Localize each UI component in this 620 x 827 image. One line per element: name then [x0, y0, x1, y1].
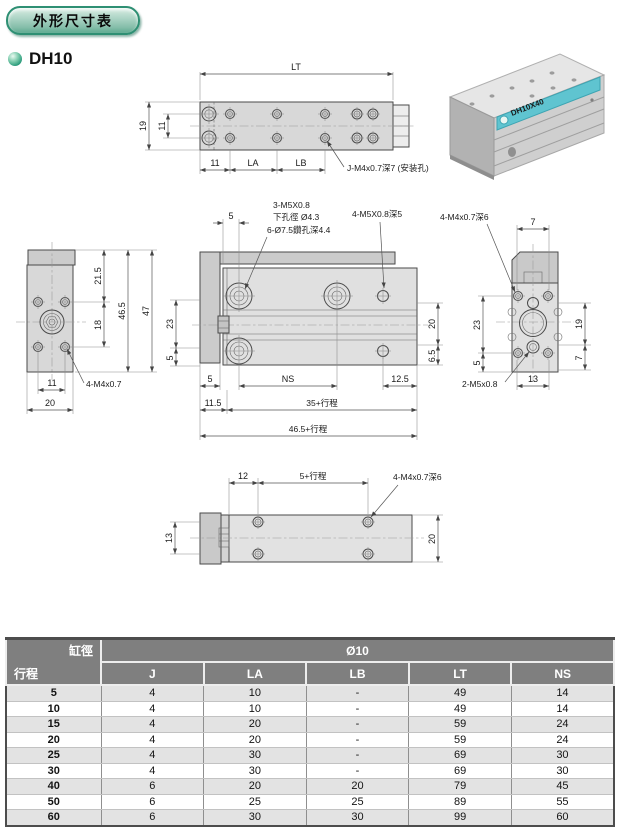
callout-4-m4: 4-M4x0.7 — [86, 379, 122, 389]
cell: 69 — [409, 748, 512, 764]
cell: 30 — [306, 810, 409, 826]
dim-5-top: 5 — [228, 211, 233, 221]
dim-19: 19 — [574, 319, 584, 329]
bottom-view: 12 5+行程 4-M4x0.7深6 13 20 — [164, 471, 443, 564]
cell: 30 — [511, 748, 614, 764]
dim-47: 47 — [141, 306, 151, 316]
dim-18: 18 — [93, 320, 103, 330]
cell: 25 — [204, 794, 307, 810]
dim-11: 11 — [210, 158, 219, 168]
table-corner-cell: 缸徑 行程 — [6, 639, 101, 686]
stroke-cell: 20 — [6, 732, 101, 748]
dim-7-right: 7 — [574, 355, 584, 360]
cell: 20 — [204, 732, 307, 748]
cell: 69 — [409, 763, 512, 779]
callout-4-m5: 4-M5X0.8深5 — [352, 209, 402, 219]
table-row: 5 4 10 - 49 14 — [6, 685, 614, 701]
cell: 89 — [409, 794, 512, 810]
stroke-cell: 60 — [6, 810, 101, 826]
dim-20-right: 20 — [427, 319, 437, 329]
cell: 30 — [204, 810, 307, 826]
dim-7-top: 7 — [530, 217, 535, 227]
dim-11-side: 11 — [157, 121, 167, 130]
cell: - — [306, 748, 409, 764]
cell: - — [306, 763, 409, 779]
dim-lb: LB — [295, 158, 306, 168]
callout-3-m5-line2: 下孔徑 Ø4.3 — [273, 212, 320, 222]
col-header-ns: NS — [511, 662, 614, 685]
cell: 55 — [511, 794, 614, 810]
cell: 14 — [511, 701, 614, 717]
cell: 10 — [204, 701, 307, 717]
stroke-cell: 15 — [6, 717, 101, 733]
dim-11-5: 11.5 — [205, 398, 222, 408]
dim-46-5-stroke: 46.5+行程 — [289, 424, 328, 434]
product-photo: DH10X40 — [450, 54, 604, 180]
callout-3-m5-line3: 6-Ø7.5鑽孔深4.4 — [267, 225, 331, 235]
cell: 49 — [409, 685, 512, 701]
callout-3-m5-line1: 3-M5X0.8 — [273, 200, 310, 210]
cell: 20 — [204, 779, 307, 795]
stroke-cell: 5 — [6, 685, 101, 701]
cell: 4 — [101, 717, 204, 733]
stroke-cell: 25 — [6, 748, 101, 764]
corner-bore-label: 缸徑 — [69, 642, 93, 659]
stroke-cell: 30 — [6, 763, 101, 779]
stroke-cell: 50 — [6, 794, 101, 810]
cell: 20 — [306, 779, 409, 795]
dim-20-bottom-view: 20 — [427, 534, 437, 544]
cell: - — [306, 701, 409, 717]
cell: 30 — [204, 763, 307, 779]
cell: 4 — [101, 763, 204, 779]
dim-19: 19 — [138, 121, 148, 131]
callout-4-m4-deep6: 4-M4x0.7深6 — [440, 212, 489, 222]
dim-5-left: 5 — [165, 355, 175, 360]
cell: 59 — [409, 717, 512, 733]
dim-5-stroke: 5+行程 — [300, 471, 327, 481]
dim-20-bottom: 20 — [45, 398, 55, 408]
table-row: 50 6 25 25 89 55 — [6, 794, 614, 810]
dim-5-right-view: 5 — [472, 360, 482, 365]
cell: 24 — [511, 732, 614, 748]
cell: 6 — [101, 779, 204, 795]
cell: 6 — [101, 794, 204, 810]
stroke-cell: 10 — [6, 701, 101, 717]
cell: 14 — [511, 685, 614, 701]
corner-stroke-label: 行程 — [14, 665, 38, 682]
dim-6-5: 6.5 — [427, 350, 437, 363]
table-row: 20 4 20 - 59 24 — [6, 732, 614, 748]
table-row: 40 6 20 20 79 45 — [6, 779, 614, 795]
cell: 20 — [204, 717, 307, 733]
dim-5-bottom: 5 — [207, 374, 212, 384]
cell: - — [306, 732, 409, 748]
dimension-table: 缸徑 行程 Ø10 J LA LB LT NS 5 4 10 - 49 14 — [5, 637, 615, 827]
cell: 25 — [306, 794, 409, 810]
table-row: 10 4 10 - 49 14 — [6, 701, 614, 717]
cell: 99 — [409, 810, 512, 826]
cell: 6 — [101, 810, 204, 826]
cell: 4 — [101, 748, 204, 764]
cell: 30 — [511, 763, 614, 779]
col-header-la: LA — [204, 662, 307, 685]
callout-4-m4-deep6-bottom: 4-M4x0.7深6 — [393, 472, 442, 482]
dim-12: 12 — [238, 471, 248, 481]
dim-13: 13 — [528, 374, 538, 384]
cell: 30 — [204, 748, 307, 764]
dim-23-left: 23 — [165, 319, 175, 329]
callout-mounting-holes: J-M4x0.7深7 (安装孔) — [347, 163, 429, 173]
table-row: 30 4 30 - 69 30 — [6, 763, 614, 779]
table-row: 25 4 30 - 69 30 — [6, 748, 614, 764]
front-view: 5 3-M5X0.8 下孔徑 Ø4.3 6-Ø7.5鑽孔深4.4 4-M5X0.… — [165, 200, 443, 440]
top-view: LT 19 11 11 LA LB J-M4x0.7深7 (安装孔) — [138, 62, 429, 174]
dim-11-bottom: 11 — [47, 378, 56, 388]
cell: - — [306, 685, 409, 701]
cell: 24 — [511, 717, 614, 733]
col-header-lt: LT — [409, 662, 512, 685]
bore-header: Ø10 — [101, 639, 614, 663]
stroke-cell: 40 — [6, 779, 101, 795]
col-header-j: J — [101, 662, 204, 685]
table-row: 60 6 30 30 99 60 — [6, 810, 614, 826]
cell: 49 — [409, 701, 512, 717]
col-header-lb: LB — [306, 662, 409, 685]
dim-13-bottom-view: 13 — [164, 533, 174, 543]
table-row: 15 4 20 - 59 24 — [6, 717, 614, 733]
cell: 60 — [511, 810, 614, 826]
left-end-view: 21.5 18 46.5 47 11 20 4-M4x0.7 — [16, 242, 157, 414]
dim-35-stroke: 35+行程 — [306, 398, 338, 408]
cell: 4 — [101, 732, 204, 748]
dim-la: LA — [247, 158, 258, 168]
cell: 45 — [511, 779, 614, 795]
callout-2-m5: 2-M5x0.8 — [462, 379, 498, 389]
cell: 59 — [409, 732, 512, 748]
cell: 10 — [204, 685, 307, 701]
dim-12-5: 12.5 — [391, 374, 409, 384]
cell: - — [306, 717, 409, 733]
dimension-table-container: 缸徑 行程 Ø10 J LA LB LT NS 5 4 10 - 49 14 — [5, 637, 615, 827]
right-end-view: 7 4-M4x0.7深6 23 5 19 7 13 2-M5x0.8 — [440, 212, 591, 390]
dim-ns: NS — [282, 374, 295, 384]
dimension-drawings: LT 19 11 11 LA LB J-M4x0.7深7 (安装孔) — [0, 0, 620, 625]
dim-21-5: 21.5 — [93, 267, 103, 285]
cell: 4 — [101, 685, 204, 701]
dim-23-right-view: 23 — [472, 320, 482, 330]
cell: 79 — [409, 779, 512, 795]
dim-46-5: 46.5 — [117, 302, 127, 320]
dim-lt: LT — [291, 62, 301, 72]
cell: 4 — [101, 701, 204, 717]
